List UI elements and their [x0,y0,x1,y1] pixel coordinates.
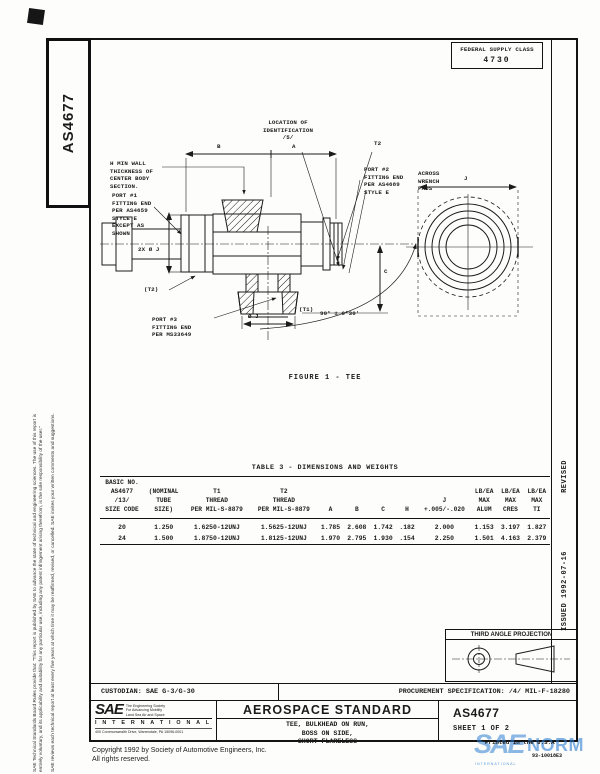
sae-tagline: The Engineering Society For Advancing Mo… [126,704,165,717]
revised-label-box: REVISED [552,442,577,510]
table-header-cell: J +.005/-.020 [418,477,471,519]
label-port2: PORT #2 FITTING END PER AS4689 STYLE E [364,166,420,196]
table-cell: 1.501 [471,533,497,545]
drawing-figure: LOCATION OF IDENTIFICATION /5/ B A H MIN… [96,110,556,402]
table-row: 24 1.500 1.8750-12UNJ 1.8125-12UNJ 1.970… [100,533,550,545]
dimensions-table-title: TABLE 3 - DIMENSIONS AND WEIGHTS [100,464,550,472]
label-dim-c: C [384,268,388,276]
table-cell: 1.8750-12UNJ [183,533,250,545]
projection-title: THIRD ANGLE PROJECTION [446,630,577,640]
table-cell: 2.379 [524,533,550,545]
dimensions-table: BASIC NO. AS4677 /13/ SIZE CODE (NOMINAL… [100,476,550,545]
table-header-cell: T1 THREAD PER MIL-S-8879 [183,477,250,519]
document-page: SAE Technical Standards Board Rules prov… [0,0,600,774]
label-location-of-identification: LOCATION OF IDENTIFICATION /5/ [246,119,330,142]
table-cell: 1.153 [471,518,497,533]
watermark-international-text: INTERNATIONAL [475,762,517,766]
federal-supply-class-box: FEDERAL SUPPLY CLASS 4730 [451,42,543,69]
revised-label: REVISED [561,460,569,493]
table-header-cell: H [396,477,418,519]
doc-number-sidebar-box: AS4677 [46,38,91,208]
table-cell: 1.970 [317,533,343,545]
table-header-cell: B [344,477,370,519]
table-cell: 1.250 [144,518,183,533]
issued-date-label: ISSUED 1992-07-16 [561,551,569,631]
left-margin-disclaimer: SAE Technical Standards Board Rules prov… [33,380,57,772]
label-port3: PORT #3 FITTING END PER MS33649 [152,316,212,339]
dimensions-table-block: TABLE 3 - DIMENSIONS AND WEIGHTS BASIC N… [100,464,550,545]
sae-international-label: I N T E R N A T I O N A L [95,718,212,726]
figure-caption: FIGURE 1 - TEE [240,374,410,382]
label-wall-thickness-note: H MIN WALL THICKNESS OF CENTER BODY SECT… [110,160,176,190]
title-block-row1: CUSTODIAN: SAE G-3/G-30 PROCUREMENT SPEC… [91,684,576,701]
table-cell: 3.197 [497,518,523,533]
stamp-code: 93-10018E3 [532,753,562,759]
table-cell: 24 [100,533,144,545]
table-cell: 2.608 [344,518,370,533]
table-header-cell: A [317,477,343,519]
label-across-wrench-pads: ACROSS WRENCH PADS [418,170,454,193]
table-cell: 2.000 [418,518,471,533]
label-t2: T2 [374,140,381,148]
document-type-cell: AEROSPACE STANDARD TEE, BULKHEAD ON RUN,… [217,701,439,742]
table-header-cell: C [370,477,396,519]
aerospace-standard-title: AEROSPACE STANDARD [217,701,438,719]
label-2x-dia-j: 2X Ø J [138,246,159,254]
table-cell: 20 [100,518,144,533]
label-port1: PORT #1 FITTING END PER AS4659 STYLE E E… [112,192,168,237]
table-cell: 1.5625-12UNJ [250,518,317,533]
third-angle-projection-symbol [446,640,575,676]
table-cell: 1.500 [144,533,183,545]
issued-label-box: ISSUED 1992-07-16 [552,544,577,637]
table-cell: 1.785 [317,518,343,533]
label-angle-90deg: 90° ± 0°30' [320,310,359,318]
federal-supply-class-value: 4730 [452,56,542,65]
label-dim-b: B [217,143,221,151]
sae-address: 400 Commonwealth Drive, Warrendale, PA 1… [95,728,212,734]
scan-artifact-mark [27,8,45,25]
table-header-cell: LB/EA MAX TI [524,477,550,519]
table-cell: 1.6250-12UNJ [183,518,250,533]
table-row: 20 1.250 1.6250-12UNJ 1.5625-12UNJ 1.785… [100,518,550,533]
sae-logo-cell: SAE The Engineering Society For Advancin… [91,701,217,742]
main-frame: FEDERAL SUPPLY CLASS 4730 REVISED ISSUED… [89,38,578,742]
table-cell: 2.795 [344,533,370,545]
label-t1-ref: (T1) [299,306,313,314]
copyright-line-2: All rights reserved. [92,756,267,765]
table-cell: .182 [396,518,418,533]
label-t2-ref: (T2) [144,286,158,294]
sae-logo: SAE [95,703,123,717]
document-number: AS4677 [453,706,576,720]
copyright-text: Copyright 1992 by Society of Automotive … [92,747,267,765]
label-dim-a: A [292,143,296,151]
table-header-cell: T2 THREAD PER MIL-S-8879 [250,477,317,519]
disclaimer-line-2: entirely voluntary, and its applicabilit… [39,380,45,772]
tee-drawing [96,110,556,402]
sae-norm-watermark: SAE NORM Printed in the U.S.A 93-10018E3… [474,729,600,774]
label-dia-j: Ø J [248,313,259,321]
custodian-cell: CUSTODIAN: SAE G-3/G-30 [91,684,279,700]
printed-in-usa-label: Printed in the U.S.A [485,739,555,746]
federal-supply-class-label: FEDERAL SUPPLY CLASS [452,46,542,53]
table-cell: 1.8125-12UNJ [250,533,317,545]
table-cell: .154 [396,533,418,545]
copyright-line-1: Copyright 1992 by Society of Automotive … [92,747,267,756]
document-title: TEE, BULKHEAD ON RUN, BOSS ON SIDE, SHOR… [217,721,438,747]
label-dim-j-endview: J [464,175,468,183]
third-angle-projection-box: THIRD ANGLE PROJECTION [445,629,578,682]
table-cell: 1.827 [524,518,550,533]
table-header-cell: LB/EA MAX ALUM [471,477,497,519]
table-header-cell: LB/EA MAX CRES [497,477,523,519]
table-header-cell: BASIC NO. AS4677 /13/ SIZE CODE [100,477,144,519]
doc-number-sidebar: AS4677 [60,93,77,153]
table-header-row: BASIC NO. AS4677 /13/ SIZE CODE (NOMINAL… [100,477,550,519]
table-cell: 1.930 [370,533,396,545]
table-header-cell: (NOMINAL TUBE SIZE) [144,477,183,519]
table-cell: 4.163 [497,533,523,545]
disclaimer-line-3: SAE reviews each technical report at lea… [51,380,57,772]
table-cell: 1.742 [370,518,396,533]
table-cell: 2.250 [418,533,471,545]
procurement-cell: PROCUREMENT SPECIFICATION: /4/ MIL-F-182… [399,684,570,700]
